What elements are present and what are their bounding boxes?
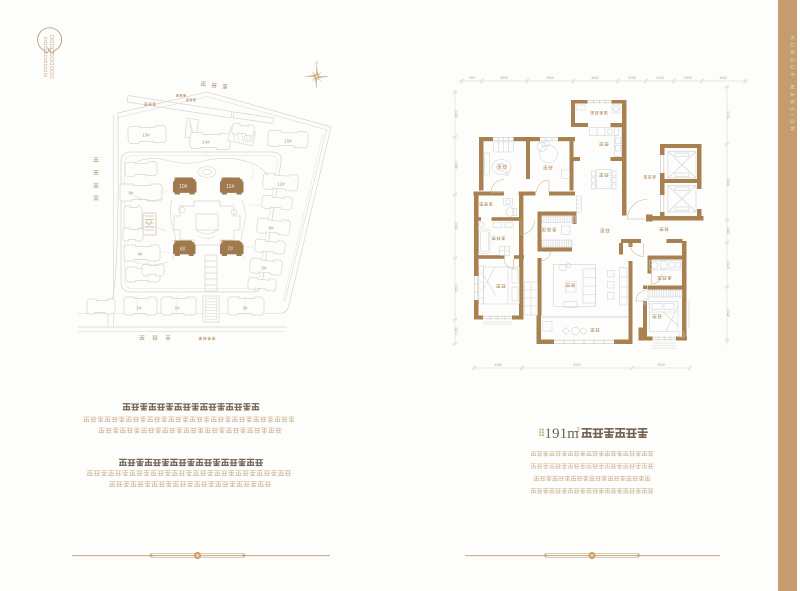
- svg-text:4500: 4500: [727, 309, 731, 317]
- svg-text:5#: 5#: [261, 266, 267, 271]
- svg-text:9200: 9200: [573, 363, 581, 367]
- svg-text:3900: 3900: [546, 76, 554, 80]
- svg-text:7#: 7#: [227, 246, 233, 252]
- svg-text:191m: 191m: [545, 426, 580, 442]
- svg-text:2150: 2150: [455, 327, 459, 335]
- svg-text:5000: 5000: [727, 111, 731, 119]
- svg-text:13#: 13#: [142, 133, 150, 138]
- svg-text:1950: 1950: [727, 227, 731, 235]
- svg-text:900: 900: [469, 76, 475, 80]
- svg-text:4150: 4150: [494, 363, 502, 367]
- svg-text:10#: 10#: [179, 184, 188, 190]
- svg-text:2100: 2100: [656, 76, 664, 80]
- svg-text:5200: 5200: [455, 284, 459, 292]
- svg-text:6#: 6#: [180, 246, 186, 252]
- svg-text:3600: 3600: [500, 76, 508, 80]
- svg-text:1#: 1#: [136, 306, 142, 311]
- svg-text:2400: 2400: [684, 76, 692, 80]
- svg-text:8#: 8#: [268, 226, 274, 231]
- svg-text:5400: 5400: [455, 222, 459, 230]
- svg-text:4200: 4200: [455, 110, 459, 118]
- svg-text:1500: 1500: [719, 76, 727, 80]
- svg-text:4#: 4#: [137, 252, 143, 257]
- svg-text:11#: 11#: [226, 184, 234, 190]
- svg-text:4800: 4800: [455, 161, 459, 169]
- svg-text:HONOUR MANSION: HONOUR MANSION: [789, 36, 795, 135]
- svg-text:3700: 3700: [727, 261, 731, 269]
- svg-text:4900: 4900: [657, 363, 665, 367]
- svg-text:14#: 14#: [202, 140, 210, 145]
- svg-text:2: 2: [577, 427, 580, 434]
- svg-text:6400: 6400: [727, 178, 731, 186]
- svg-text:12#: 12#: [277, 182, 285, 187]
- svg-text:3600: 3600: [591, 76, 599, 80]
- svg-text:15#: 15#: [284, 139, 292, 144]
- svg-text:2250: 2250: [628, 76, 636, 80]
- svg-text:9#: 9#: [128, 191, 134, 196]
